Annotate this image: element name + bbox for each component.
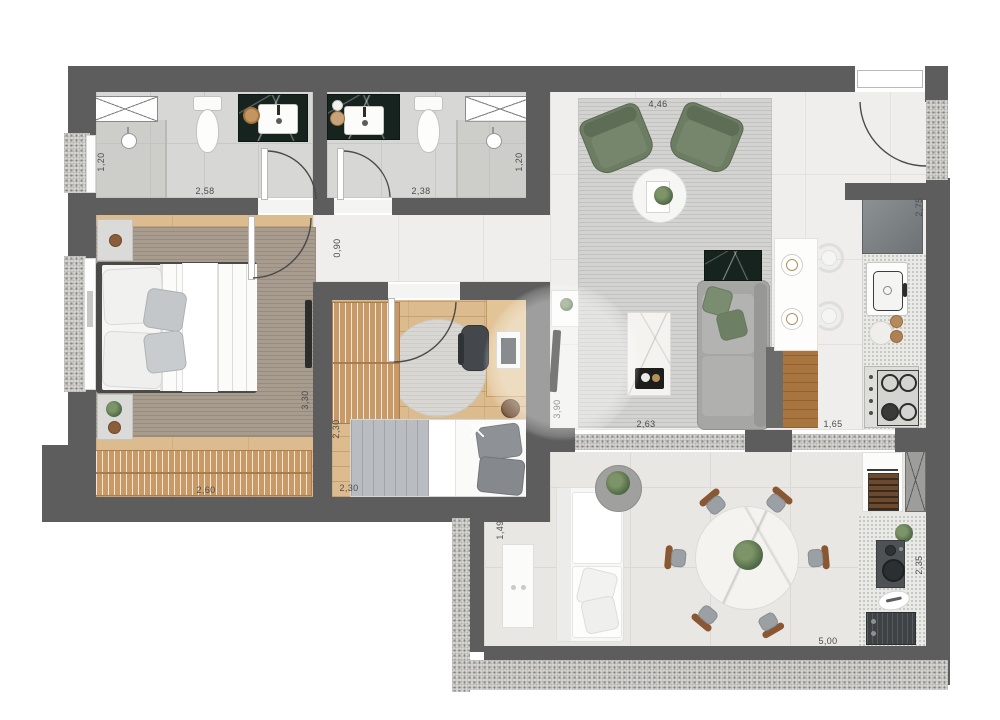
dimension-label: 2,35 [914,555,924,574]
pillow [143,330,188,375]
wall-top-a [68,66,855,92]
wall-living-west-a [526,92,550,215]
shower-glass [165,120,167,198]
stool [501,399,520,418]
door-leaf-bedroom-2 [388,298,395,362]
pillow [142,287,188,333]
sliding-door-living [575,432,745,452]
dimension-label: 2,60 [196,485,215,495]
barbecue-grill [862,452,903,512]
cutting-board [869,321,893,345]
dimension-label: 5,00 [818,636,837,646]
vessel-bowl [330,111,345,126]
canister [890,315,903,328]
wall-bath-south-a [68,198,258,215]
bed-sheet-band [182,263,218,392]
tv-master [305,300,312,368]
single-bed [350,419,528,497]
pillow [476,456,526,497]
dimension-label: 2,30 [339,483,358,493]
window-frame [86,135,96,193]
parapet-south [452,660,948,690]
wall-bath-divider [313,92,327,200]
dimension-label: 2,75 [914,197,924,216]
desk [486,298,528,397]
master-bed [96,262,257,393]
griddle [866,612,916,645]
kitchen-sink [866,262,908,316]
dimension-label: 2,38 [411,186,430,196]
wall-top-b [925,66,948,102]
cooktop [864,366,919,428]
plant [606,471,630,495]
console-table [704,250,762,281]
dimension-label: 2,58 [195,186,214,196]
door-threshold [258,200,313,213]
monitor [496,331,521,369]
dining-table [695,506,799,610]
wall-entry-side [926,100,948,180]
dimension-label: 3,30 [300,390,310,409]
dimension-label: 1,65 [823,419,842,429]
bar-chair [814,301,844,331]
dining-chair [804,544,830,572]
plant-centerpiece [733,540,763,570]
door-leaf-master-bedroom [248,216,255,280]
door-leaf-bathroom-2 [337,148,344,200]
breakfast-bar-side [766,347,783,428]
balcony-console [502,544,534,628]
soap-dish [332,100,343,111]
dimension-label: 1,20 [514,152,524,171]
floor-plan: 1,20 2,58 2,38 1,20 0,90 4,46 2,75 3,30 … [0,0,1000,720]
duct-shaft [92,96,158,122]
coffee-table [627,312,671,396]
shower-area [96,120,165,198]
wall-bath-south-c [392,198,528,215]
dimension-label: 0,90 [332,238,342,257]
place-setting [781,308,803,330]
wall-pier-1 [550,428,575,452]
duct-shaft [905,448,926,512]
door-threshold [334,200,392,213]
wall-balcony-west [470,518,484,652]
shower-head-icon [486,133,502,149]
window-frame [84,258,96,390]
shower-glass [456,120,458,198]
shower-head-icon [121,133,137,149]
toilet-bowl [417,109,440,153]
media-cabinet [551,290,579,327]
window-master-bedroom [64,256,86,392]
vessel-bowl [243,107,260,124]
breakfast-bar-base [783,349,818,428]
plant [106,401,122,417]
sofa [697,280,770,430]
door-leaf-bathroom-1 [261,148,268,200]
dimension-label: 3,90 [552,399,562,418]
faucet-icon [903,283,907,297]
sprinkler-icon [470,423,484,437]
wall-living-west-b [526,282,550,518]
wall-bedroom-divider [313,282,332,497]
place-setting [781,254,803,276]
dining-chair [664,544,690,572]
dimension-label: 4,46 [648,99,667,109]
duct-shaft [465,96,535,122]
pillow [580,595,620,635]
bathroom-sink [344,106,384,135]
canister [890,330,903,343]
wall-west-c [68,390,96,450]
dimension-label: 2,63 [636,419,655,429]
office-chair [461,325,489,371]
round-coffee-table [632,168,687,223]
hallway-floor [313,215,550,282]
toilet-bowl [196,109,219,153]
wall-pier-2 [745,430,792,452]
door-leaf-entrance [857,70,923,88]
dimension-label: 1,49 [495,520,505,539]
wall-bedroom2-north-b [460,282,526,300]
plant [654,186,673,205]
bathroom-sink [258,104,298,134]
dimension-label: 2,30 [331,419,341,438]
dimension-label: 1,20 [96,152,106,171]
side-table [595,465,642,512]
door-threshold [388,284,460,298]
sliding-door-kitchen [792,432,895,452]
wall-pier-3 [895,428,930,452]
blanket [351,420,429,496]
plant [560,298,573,311]
nightstand [97,219,133,261]
nightstand [97,394,133,440]
wall-west-a [68,92,96,135]
wall-bath-south-b [313,198,334,215]
side-burner [876,540,905,588]
bar-chair [814,243,844,273]
wall-balcony-south [484,646,928,660]
